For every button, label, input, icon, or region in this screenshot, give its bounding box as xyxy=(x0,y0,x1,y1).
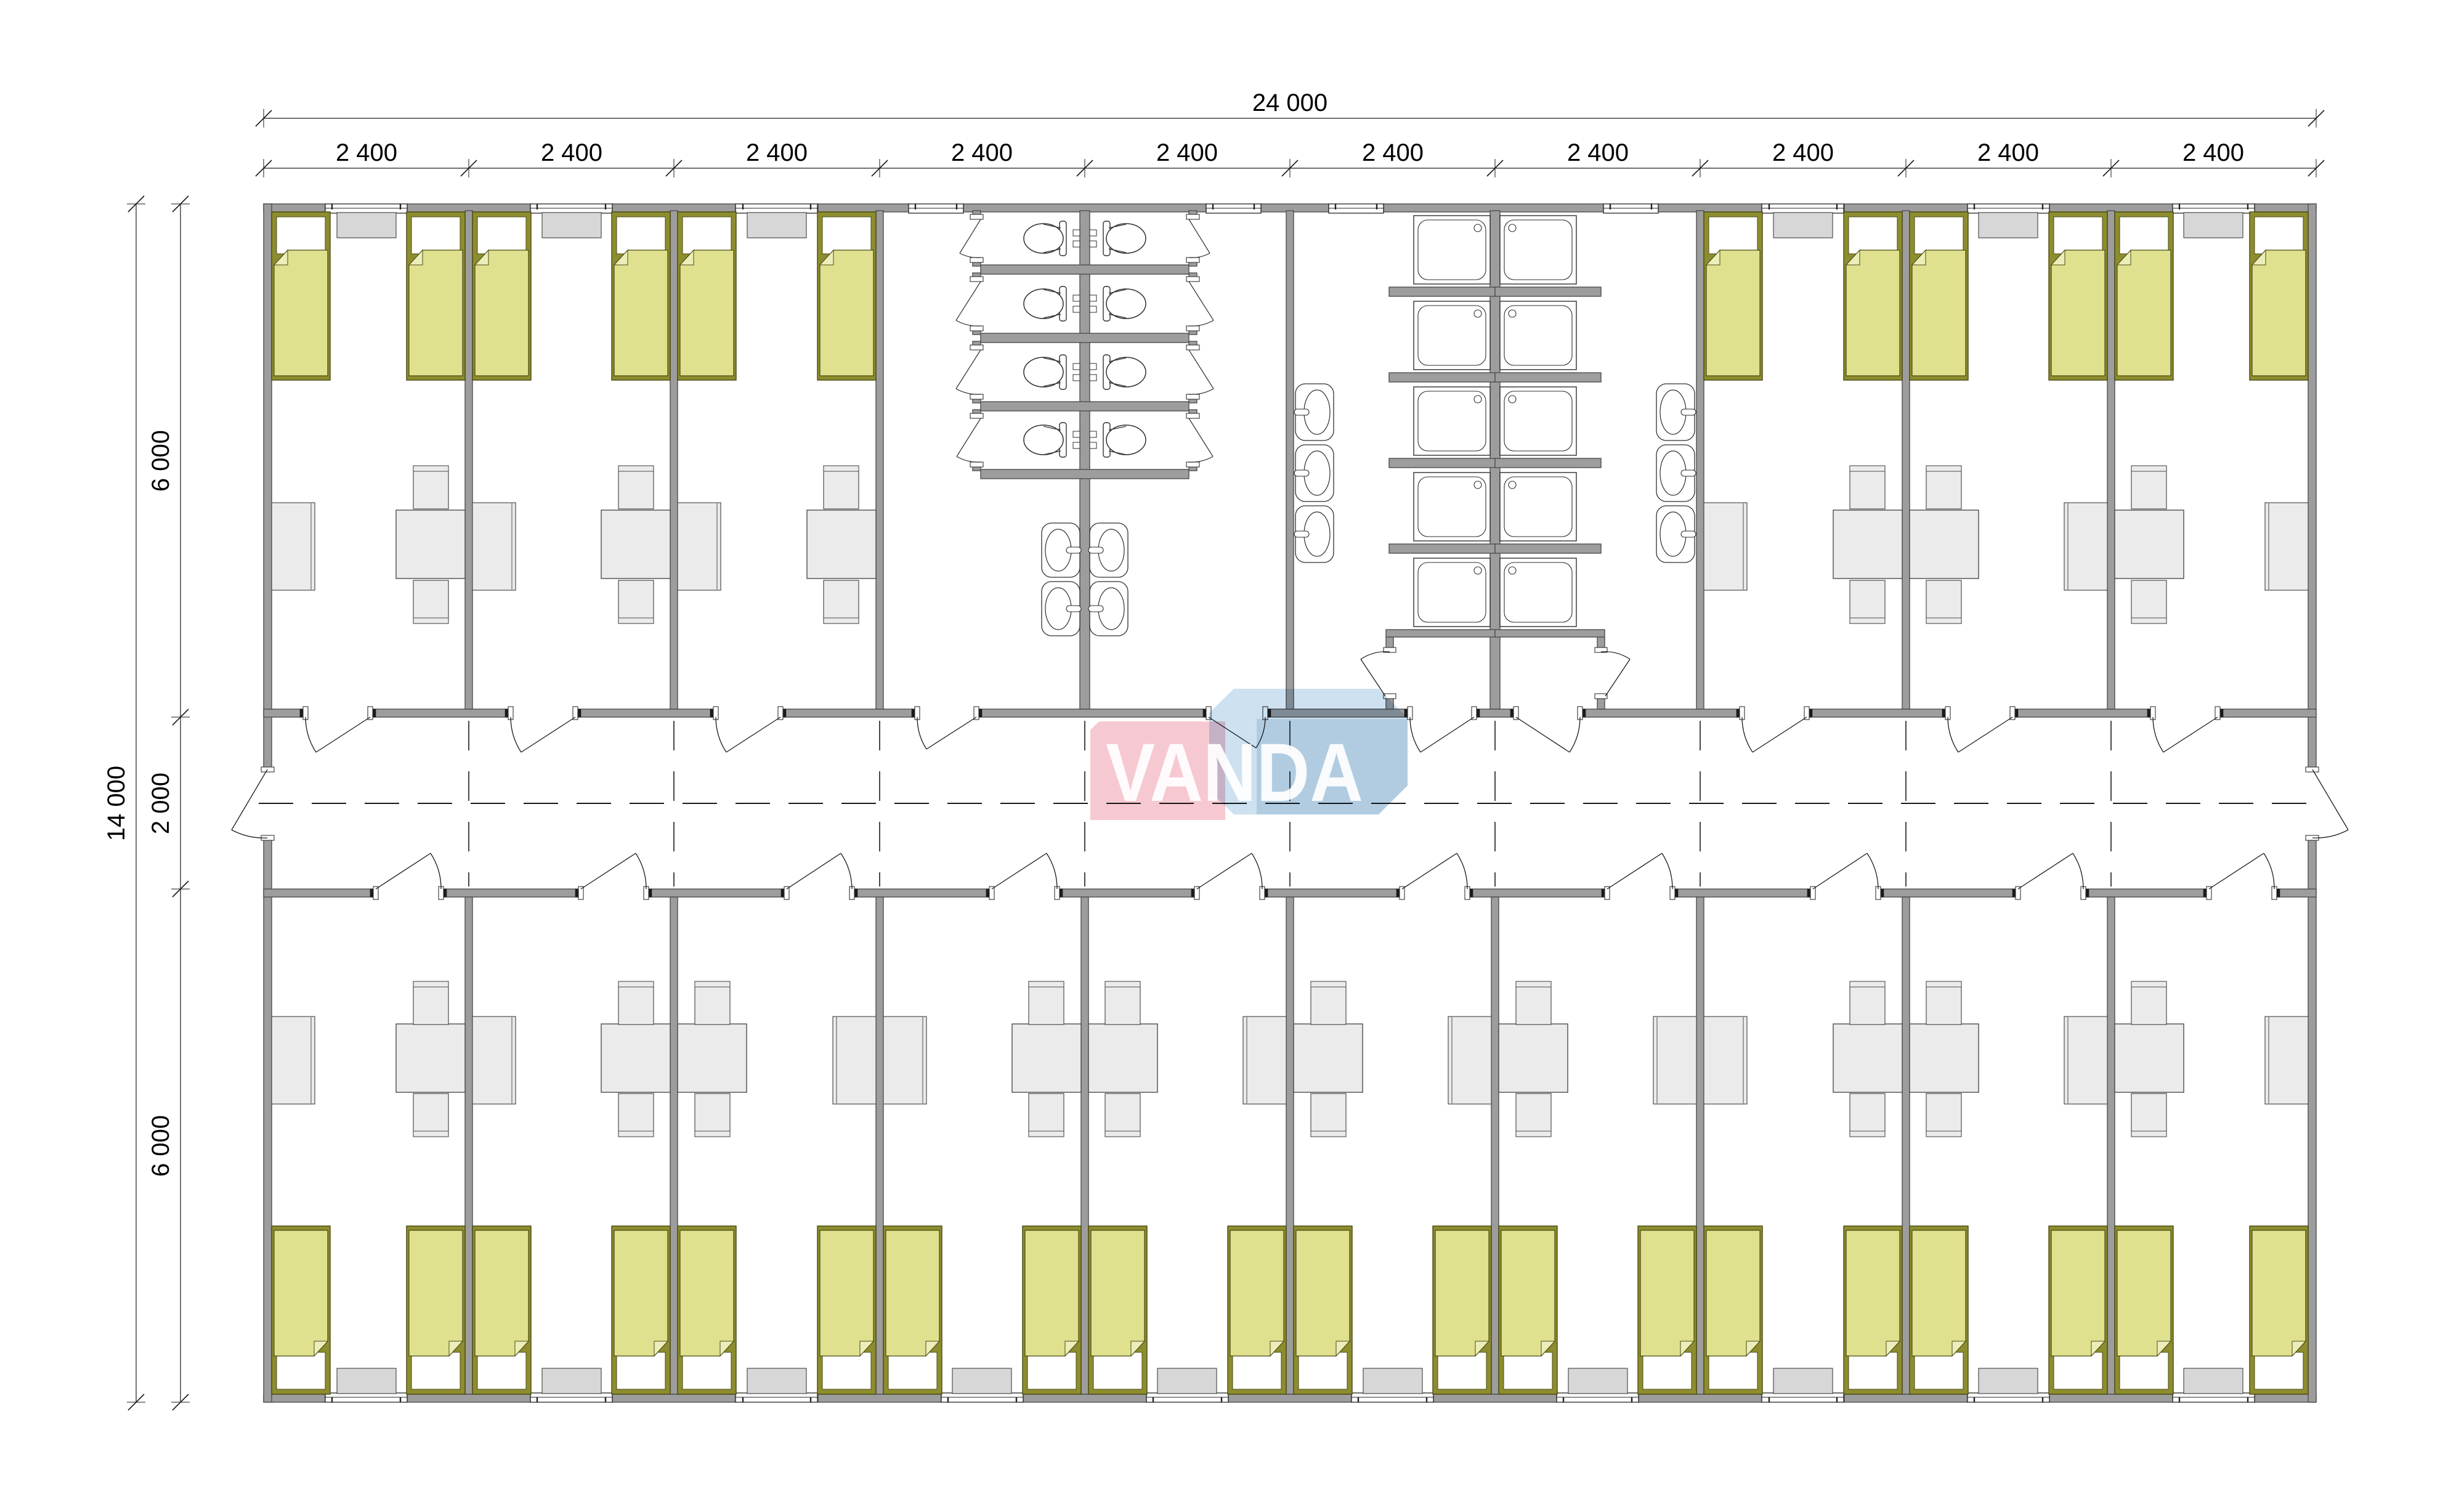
svg-text:2 400: 2 400 xyxy=(1362,139,1424,166)
svg-text:2 400: 2 400 xyxy=(1772,139,1834,166)
svg-text:2 400: 2 400 xyxy=(541,139,602,166)
svg-text:VANDA: VANDA xyxy=(1106,727,1363,819)
svg-text:2 000: 2 000 xyxy=(147,773,174,834)
svg-text:14 000: 14 000 xyxy=(103,766,130,841)
svg-text:2 400: 2 400 xyxy=(1977,139,2039,166)
svg-text:24 000: 24 000 xyxy=(1252,89,1327,116)
svg-text:2 400: 2 400 xyxy=(2182,139,2244,166)
svg-text:2 400: 2 400 xyxy=(951,139,1013,166)
svg-text:6 000: 6 000 xyxy=(147,430,174,492)
svg-text:2 400: 2 400 xyxy=(746,139,808,166)
svg-text:2 400: 2 400 xyxy=(336,139,397,166)
svg-text:2 400: 2 400 xyxy=(1567,139,1629,166)
svg-text:2 400: 2 400 xyxy=(1156,139,1218,166)
svg-text:6 000: 6 000 xyxy=(147,1115,174,1177)
